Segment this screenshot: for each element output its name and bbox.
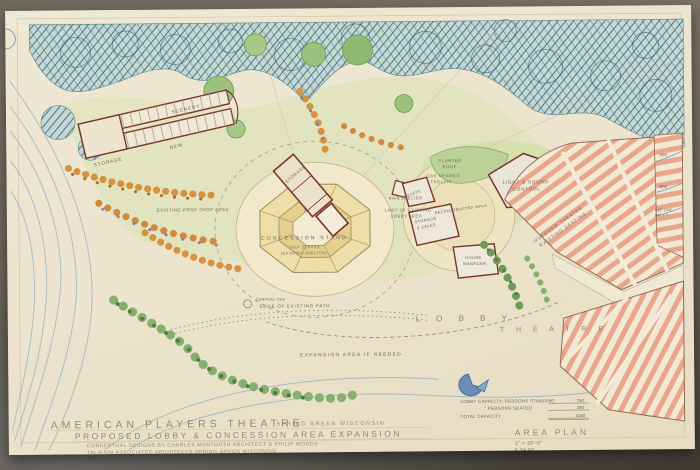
capacity-row1-label: LOBBY CAPACITY: PERSONS STANDING: [460, 398, 555, 404]
ref-line-label-1: REF. LINE: [655, 208, 673, 212]
central-oak-label: CENTRAL OAK: [256, 298, 286, 302]
shrub-band: [114, 298, 359, 400]
oak-label-1: OAK FRAMED: [427, 173, 461, 178]
house-manager-label-2: MANAGER: [463, 261, 486, 266]
plan-scale: 1" = 20'-0": [515, 440, 543, 446]
plan-name: AREA PLAN: [515, 427, 589, 438]
capacity-row2-value: 400: [577, 405, 585, 410]
house-manager-label-1: HOUSE: [465, 255, 481, 260]
plan-date: 6.24.93: [515, 447, 535, 453]
project-firm: TALIESIN ASSOCIATED ARCHITECTS SPRING GR…: [87, 449, 277, 455]
hedge-dots: [484, 244, 549, 307]
expansion-label: EXPANSION AREA IF NEEDED: [300, 352, 402, 359]
site-plan: SCENERY STORAGE NEW: [5, 5, 695, 455]
existing-shelter-label: (EXISTING SHELTER): [281, 251, 327, 255]
prop-shop-area-label: EXISTING PROP SHOP AREA: [157, 207, 229, 213]
theatre-seating: [504, 133, 685, 423]
limit-label-2: LOBBY AREA: [391, 213, 422, 218]
planted-label-1: PLANTED: [438, 158, 462, 163]
plan-info: AREA PLAN 1" = 20'-0" 6.24.93: [515, 427, 589, 454]
edge-path-label: EDGE OF EXISTING PATH: [260, 303, 331, 309]
project-subtitle: PROPOSED LOBBY & CONCESSION AREA EXPANSI…: [75, 429, 402, 442]
limit-label-1: LIMIT OF EXISTING: [385, 207, 432, 212]
capacity-row3-value: 1150: [576, 413, 586, 418]
concession-stand-label: CONCESSION STAND: [261, 235, 348, 242]
capacity-row1-value: 750: [576, 398, 584, 403]
elevation-900: 900: [659, 152, 667, 157]
oak-label-2: TRELLIS: [431, 179, 452, 184]
light-sound-label-2: CONTROL: [513, 186, 541, 191]
planted-label-2: ROOF: [442, 164, 457, 169]
theatre-area-label: T H E A T R E: [500, 326, 608, 334]
light-sound-label-1: LIGHT & SOUND: [503, 179, 549, 184]
self-service-label: SELF SERVICE: [289, 245, 321, 249]
capacity-row3-label: TOTAL CAPACITY: [461, 414, 502, 419]
title-block: AMERICAN PLAYERS THEATRE SPRING GREEN WI…: [49, 416, 429, 455]
project-credits: CONCEPTUAL DESIGNS BY CHARLES MONTOOTH A…: [87, 441, 319, 449]
north-arrow-icon: [459, 374, 489, 396]
ref-line-label-2: 890 + 0: [655, 213, 668, 217]
lobby-area-label: L O B B Y: [416, 314, 514, 324]
elevation-895: 895: [660, 184, 668, 189]
drawing-sheet: SCENERY STORAGE NEW: [5, 5, 695, 455]
capacity-row2-label: ” PERSONS SEATED: [485, 405, 532, 410]
photo-mat: SCENERY STORAGE NEW: [0, 0, 700, 470]
capacity-table: LOBBY CAPACITY: PERSONS STANDING 750 ” P…: [460, 398, 588, 421]
project-location: SPRING GREEN WISCONSIN: [277, 421, 386, 428]
